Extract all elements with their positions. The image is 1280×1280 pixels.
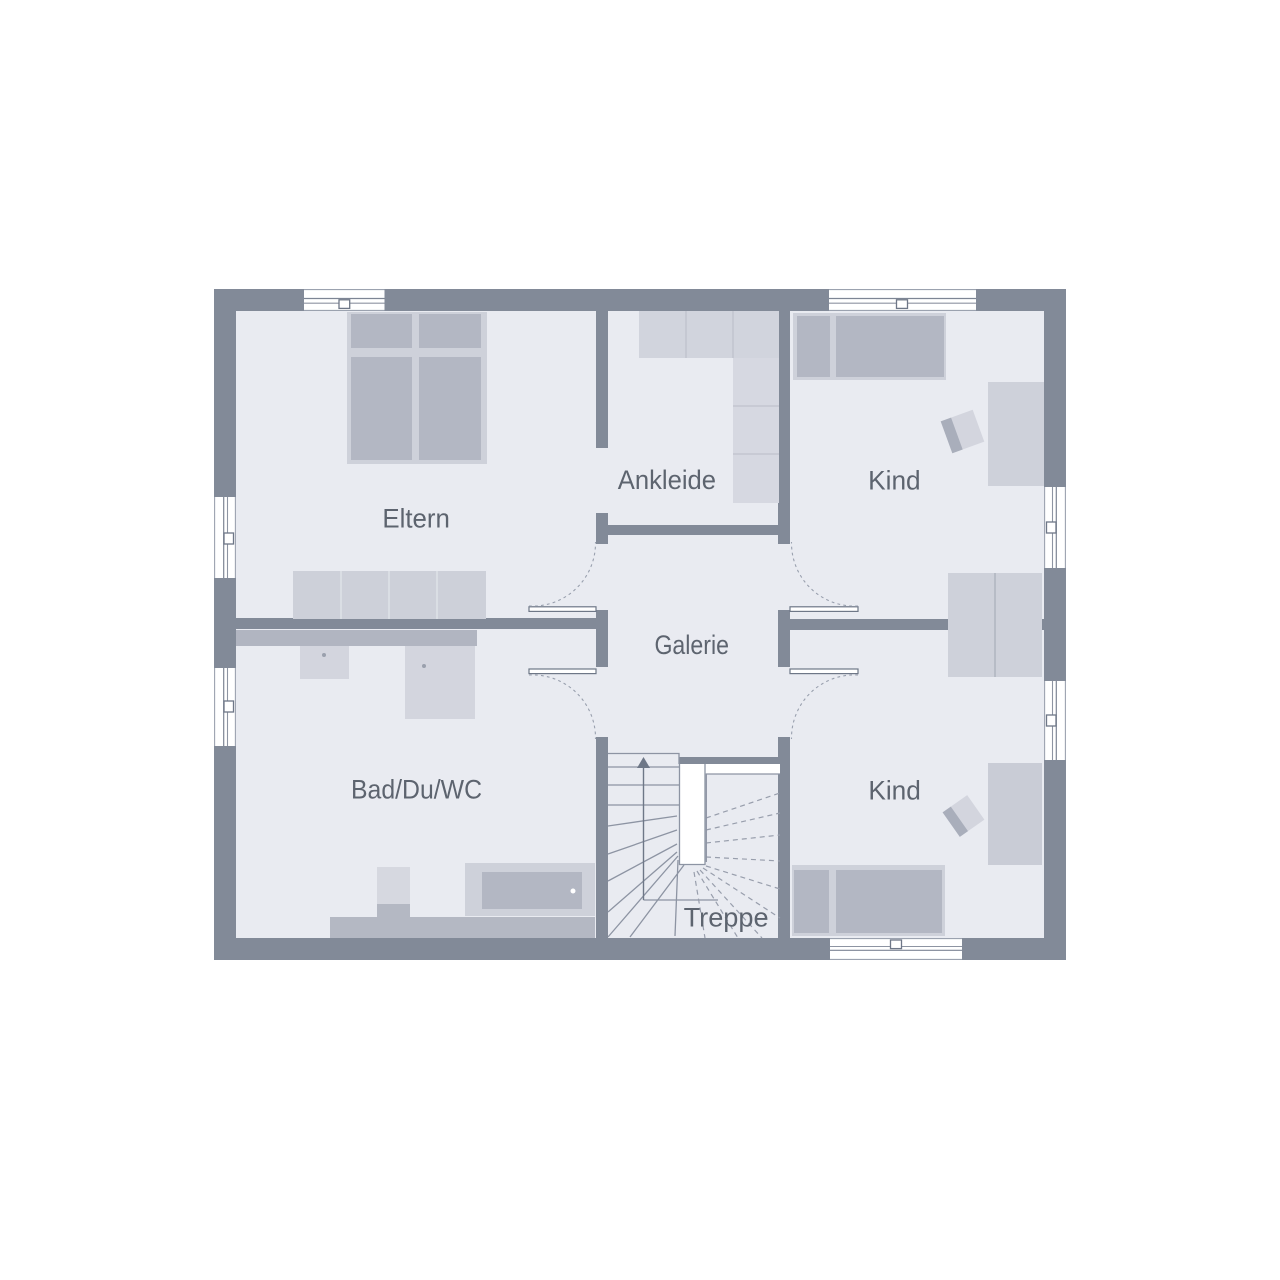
svg-text:Kind: Kind [868, 465, 921, 495]
svg-text:Galerie: Galerie [654, 630, 729, 660]
svg-text:Eltern: Eltern [382, 503, 450, 533]
svg-text:Treppe: Treppe [684, 902, 769, 932]
svg-text:Kind: Kind [868, 776, 921, 806]
svg-text:Bad/Du/WC: Bad/Du/WC [351, 774, 482, 804]
svg-text:Ankleide: Ankleide [618, 465, 716, 495]
